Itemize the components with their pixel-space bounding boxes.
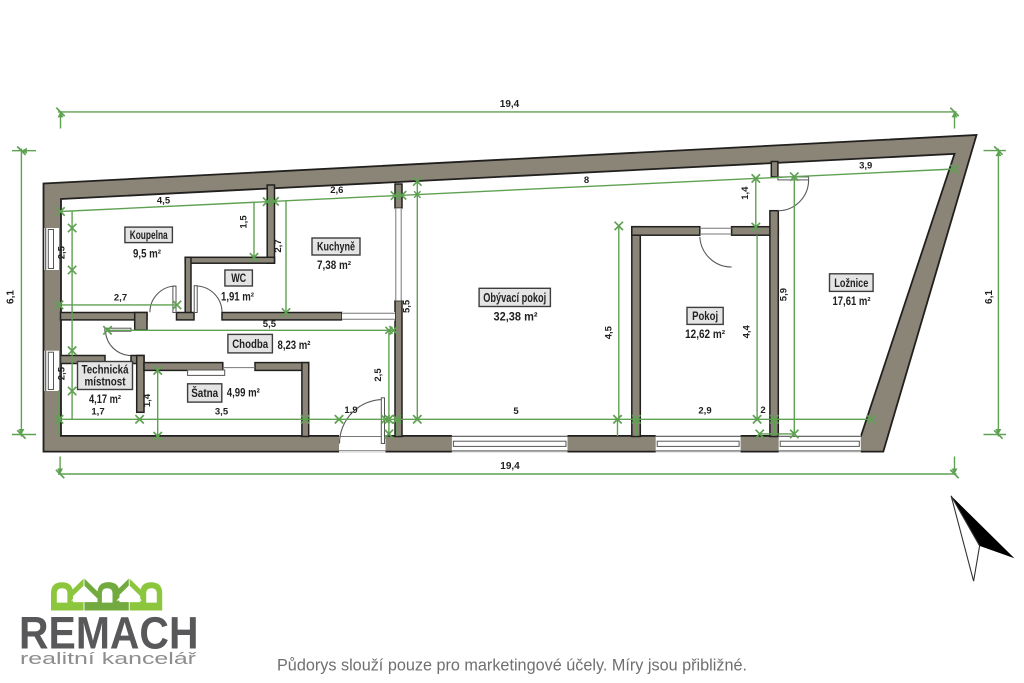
svg-text:1,4: 1,4 [740,186,751,200]
svg-text:Technická: Technická [82,365,130,377]
svg-text:19,4: 19,4 [500,99,520,110]
svg-text:Kuchyně: Kuchyně [317,242,355,254]
svg-text:6,1: 6,1 [6,290,17,304]
svg-text:2,5: 2,5 [57,366,68,380]
svg-text:5: 5 [513,406,519,417]
svg-text:7,38 m²: 7,38 m² [317,260,351,272]
svg-text:32,38 m²: 32,38 m² [494,310,538,324]
svg-text:6,1: 6,1 [984,290,995,304]
svg-text:9,5 m²: 9,5 m² [133,249,161,261]
svg-text:4,5: 4,5 [604,325,615,339]
svg-text:4,4: 4,4 [742,324,753,338]
svg-text:2,5: 2,5 [373,368,384,382]
svg-text:1,4: 1,4 [142,393,153,407]
svg-text:Ložnice: Ložnice [834,276,868,290]
svg-text:2,5: 2,5 [57,245,68,259]
svg-text:4,17 m²: 4,17 m² [89,394,121,406]
svg-text:1,9: 1,9 [344,405,357,416]
svg-text:2,6: 2,6 [330,185,343,196]
svg-text:1,91 m²: 1,91 m² [221,292,254,304]
svg-text:1,7: 1,7 [91,407,104,418]
svg-text:8: 8 [584,175,589,186]
svg-text:1,5: 1,5 [239,215,250,229]
svg-text:2,9: 2,9 [698,406,711,417]
svg-text:Koupelna: Koupelna [130,230,168,242]
svg-text:5,9: 5,9 [779,288,790,301]
svg-text:Šatna: Šatna [191,385,218,400]
svg-text:2,7: 2,7 [273,239,284,252]
svg-text:5,5: 5,5 [402,299,413,313]
svg-text:8,23 m²: 8,23 m² [278,338,311,352]
svg-text:2: 2 [760,405,765,416]
svg-text:realitní kancelář: realitní kancelář [20,649,196,668]
svg-text:3,9: 3,9 [859,161,872,172]
svg-text:Půdorys slouží pouze pro marke: Půdorys slouží pouze pro marketingové úč… [277,657,747,675]
svg-text:místnost: místnost [85,377,126,389]
svg-text:19,4: 19,4 [500,461,520,472]
svg-text:2,7: 2,7 [114,293,127,304]
svg-text:3,5: 3,5 [215,407,229,418]
svg-text:4,99 m²: 4,99 m² [227,386,260,400]
svg-text:4,5: 4,5 [157,196,171,207]
svg-text:5,5: 5,5 [263,319,277,330]
svg-text:Pokoj: Pokoj [692,311,718,323]
svg-text:17,61 m²: 17,61 m² [833,296,871,308]
svg-text:12,62 m²: 12,62 m² [685,329,725,341]
svg-text:Obývací pokoj: Obývací pokoj [483,291,546,305]
svg-text:Chodba: Chodba [232,337,268,351]
svg-text:WC: WC [231,273,246,285]
